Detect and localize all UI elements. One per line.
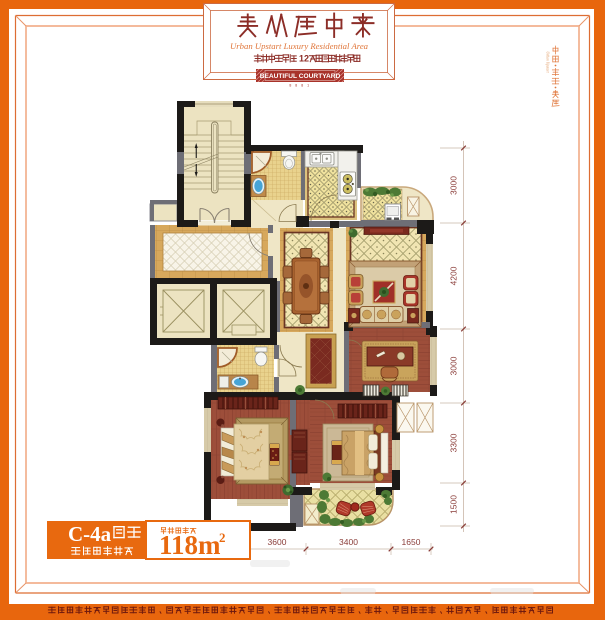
svg-text:3600: 3600 [268, 537, 287, 547]
svg-text:4200: 4200 [449, 266, 459, 285]
svg-text:3000: 3000 [449, 176, 459, 195]
svg-text:8 8 8 1: 8 8 8 1 [289, 84, 310, 88]
svg-text:3000: 3000 [449, 356, 459, 375]
svg-text:2: 2 [219, 530, 226, 545]
svg-text:1650: 1650 [402, 537, 421, 547]
svg-text:1500: 1500 [449, 495, 459, 514]
svg-text:Urban Upstart: Urban Upstart [546, 51, 550, 73]
svg-text:118m: 118m [159, 530, 221, 560]
svg-text:Urban Upstart Luxury Residenti: Urban Upstart Luxury Residential Area [230, 41, 369, 51]
svg-text:12: 12 [299, 53, 309, 63]
svg-text:BEAUTIFUL COURTYARD: BEAUTIFUL COURTYARD [260, 73, 341, 80]
svg-text:3400: 3400 [339, 537, 358, 547]
svg-text:3300: 3300 [449, 433, 459, 452]
svg-text:C-4a: C-4a [68, 522, 112, 546]
